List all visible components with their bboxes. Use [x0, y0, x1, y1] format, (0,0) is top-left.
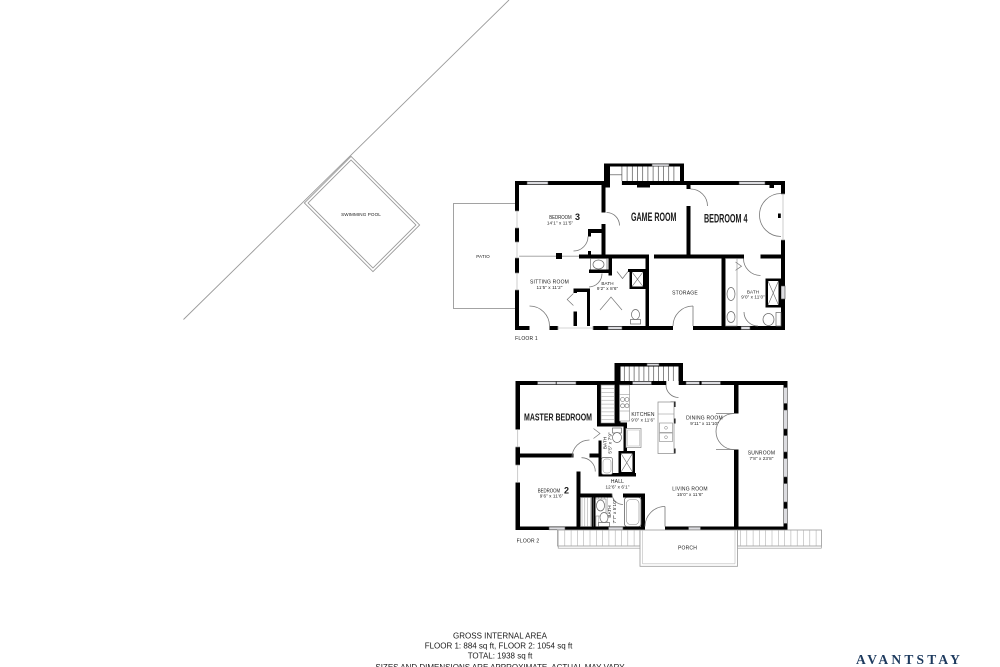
svg-text:FLOOR 1: 884 sq ft, FLOOR 2: 1: FLOOR 1: 884 sq ft, FLOOR 2: 1054 sq ft	[425, 642, 573, 651]
svg-text:9’11” x 11’10”: 9’11” x 11’10”	[690, 421, 719, 426]
svg-text:BEDROOM 4: BEDROOM 4	[704, 212, 748, 226]
svg-text:7’7” x 5’10”: 7’7” x 5’10”	[612, 499, 617, 523]
svg-text:SWIMMING POOL: SWIMMING POOL	[341, 212, 381, 217]
svg-text:SIZES AND DIMENSIONS ARE APPRO: SIZES AND DIMENSIONS ARE APPROXIMATE, AC…	[375, 663, 625, 667]
svg-text:11’5” x 11’2”: 11’5” x 11’2”	[537, 285, 563, 290]
svg-text:9’2” x 8’6”: 9’2” x 8’6”	[597, 286, 619, 291]
svg-text:MASTER BEDROOM: MASTER BEDROOM	[524, 413, 592, 424]
svg-text:9’0” x 11’0”: 9’0” x 11’0”	[741, 295, 765, 300]
svg-text:STORAGE: STORAGE	[672, 291, 698, 297]
svg-text:14’1” x 11’5”: 14’1” x 11’5”	[547, 221, 574, 226]
svg-text:AVANTSTAY: AVANTSTAY	[856, 652, 963, 667]
svg-text:GROSS INTERNAL AREA: GROSS INTERNAL AREA	[453, 632, 548, 641]
svg-text:FLOOR 2: FLOOR 2	[517, 539, 540, 545]
svg-text:15’0” x 11’6”: 15’0” x 11’6”	[677, 492, 704, 497]
svg-text:12’6” x 6’1”: 12’6” x 6’1”	[606, 485, 630, 490]
svg-text:FLOOR 1: FLOOR 1	[515, 336, 538, 342]
svg-text:TOTAL: 1938 sq ft: TOTAL: 1938 sq ft	[468, 652, 533, 661]
svg-text:3: 3	[575, 212, 580, 222]
svg-text:PORCH: PORCH	[678, 546, 697, 552]
svg-text:2: 2	[564, 486, 569, 496]
svg-text:7’8” x 23’8”: 7’8” x 23’8”	[750, 456, 774, 461]
svg-text:9’6” x 11’6”: 9’6” x 11’6”	[540, 494, 564, 499]
svg-text:9’0” x 11’6”: 9’0” x 11’6”	[631, 418, 655, 423]
svg-text:5’5” x 7’9”: 5’5” x 7’9”	[608, 432, 613, 454]
svg-text:PATIO: PATIO	[476, 254, 490, 259]
svg-text:GAME ROOM: GAME ROOM	[631, 212, 677, 224]
